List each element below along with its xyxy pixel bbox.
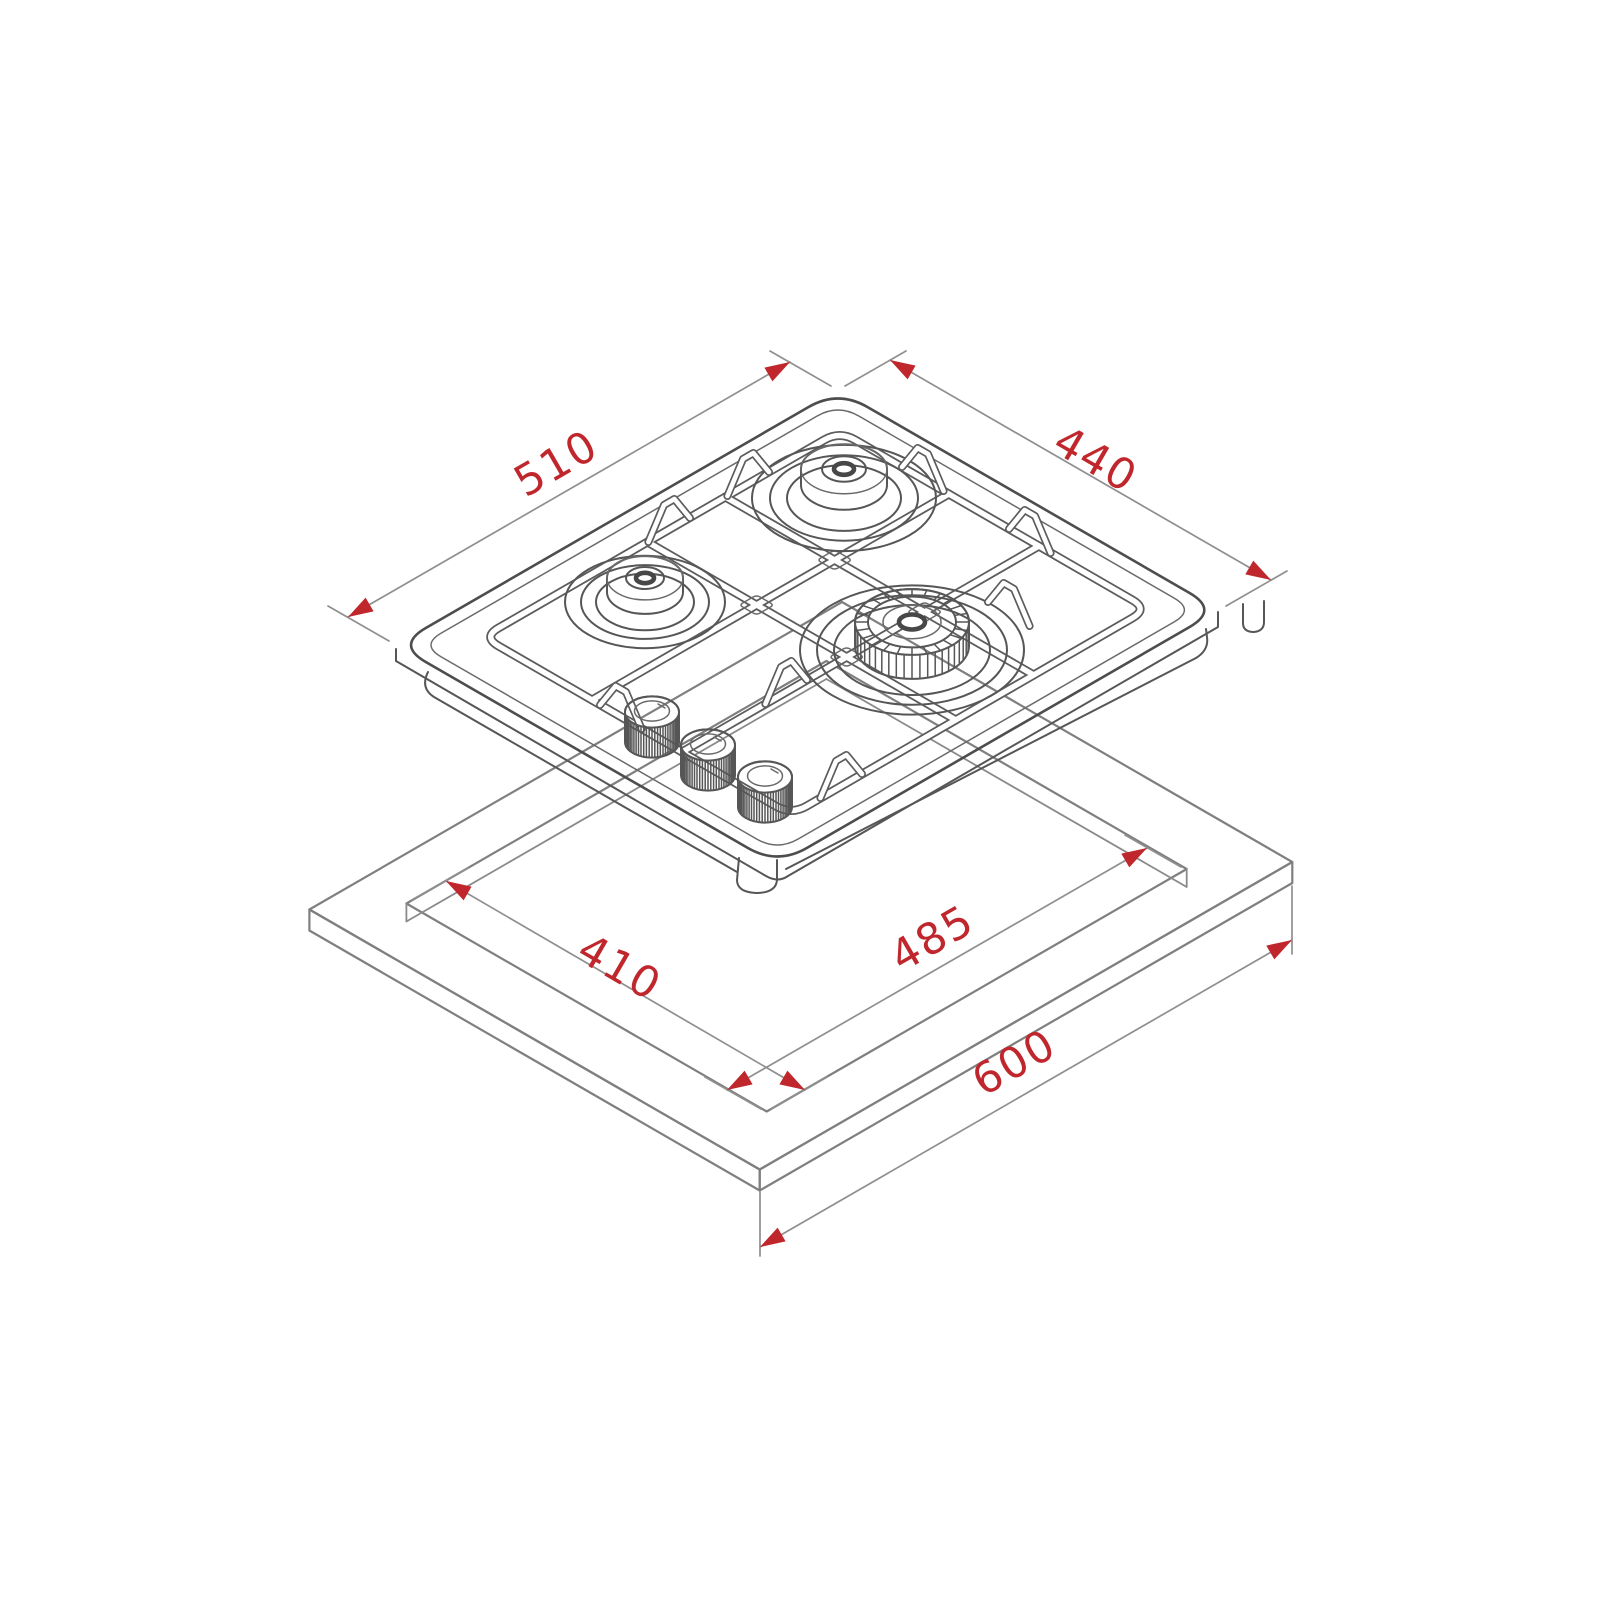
technical-drawing-page: 510 440 410 485 600 <box>0 0 1600 1600</box>
dim-label-cutout-depth: 410 <box>569 924 670 1011</box>
dim-label-worktop-width: 600 <box>964 1019 1065 1106</box>
worktop-with-cutout <box>309 602 1292 1191</box>
dim-label-hob-width: 510 <box>506 420 607 507</box>
technical-drawing-canvas: 510 440 410 485 600 <box>0 0 1600 1600</box>
dim-label-cutout-width: 485 <box>882 895 983 982</box>
dim-label-hob-depth: 440 <box>1045 416 1146 503</box>
